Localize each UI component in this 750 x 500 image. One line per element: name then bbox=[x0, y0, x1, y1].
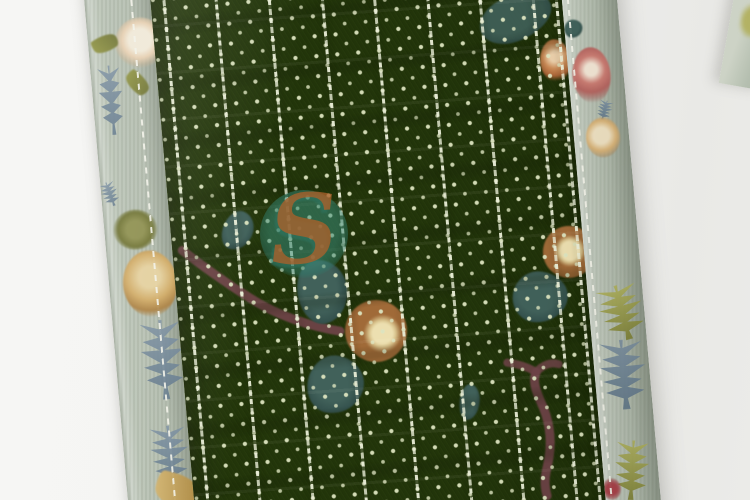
tan-flower bbox=[584, 116, 621, 159]
stem-path bbox=[182, 238, 340, 345]
quilting-stitch-line bbox=[209, 0, 270, 500]
stem-path bbox=[534, 371, 555, 495]
olive-gold-leaf bbox=[593, 279, 652, 345]
blue-leaf-small bbox=[97, 179, 122, 209]
quilting-stitch-line bbox=[471, 0, 532, 500]
corner-fabric-sliver bbox=[719, 0, 750, 92]
teal-leaf bbox=[473, 0, 559, 52]
olive-print-blob bbox=[737, 2, 750, 40]
blue-fern-sprig bbox=[597, 338, 651, 412]
quilting-stitch-line bbox=[314, 0, 375, 500]
polka-dot-panel bbox=[145, 0, 611, 500]
quilting-stitch-line bbox=[262, 0, 323, 500]
photo-canvas: S bbox=[0, 0, 750, 500]
teal-leaf-small bbox=[564, 19, 584, 39]
gold-flower-cluster bbox=[120, 248, 180, 318]
blue-fern-sprig bbox=[96, 64, 127, 136]
quilting-stitch-line bbox=[419, 0, 480, 500]
quilted-potholder bbox=[79, 0, 666, 500]
quilting-stitch-line bbox=[366, 0, 427, 500]
stem-path bbox=[536, 363, 560, 372]
